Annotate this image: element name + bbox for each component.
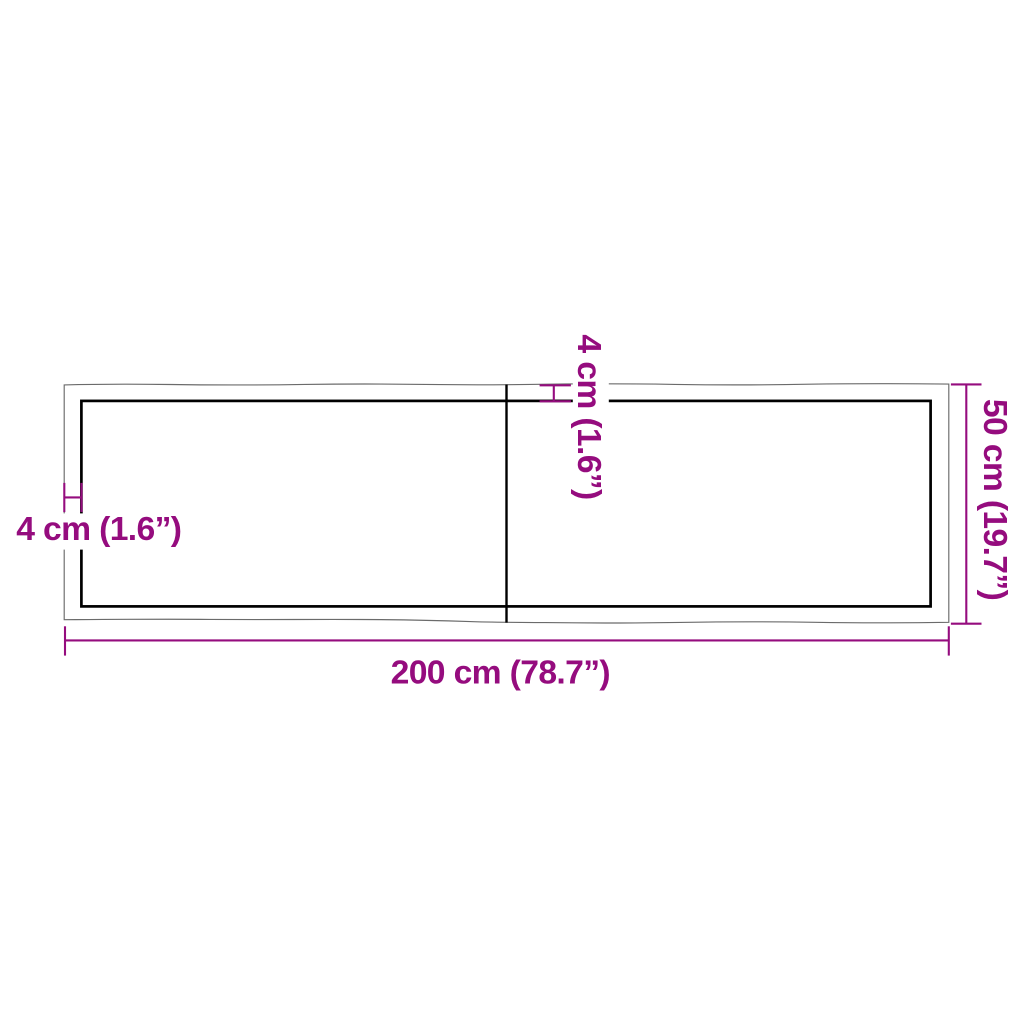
svg-text:50 cm (19.7”): 50 cm (19.7”) — [976, 399, 1014, 600]
svg-text:4 cm (1.6”): 4 cm (1.6”) — [16, 510, 181, 548]
svg-text:200 cm (78.7”): 200 cm (78.7”) — [391, 653, 610, 691]
svg-text:4 cm (1.6”): 4 cm (1.6”) — [570, 334, 608, 499]
